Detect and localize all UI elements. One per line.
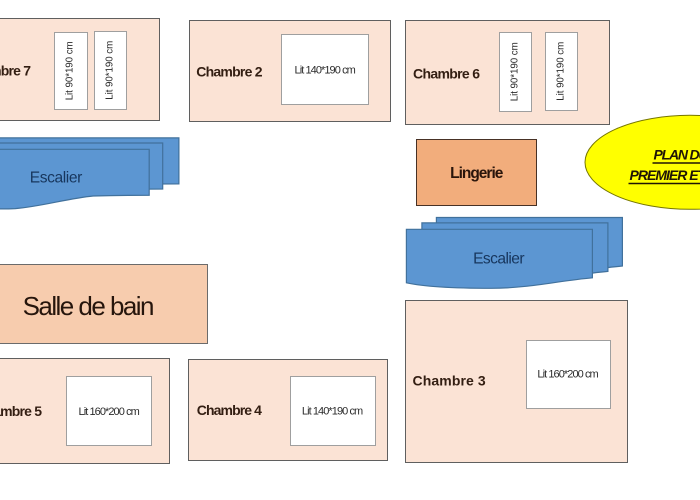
svg-text:Chambre 2: Chambre 2 [196,64,263,80]
svg-text:Lit 90*190 cm: Lit 90*190 cm [105,41,116,100]
svg-text:Chambre 6: Chambre 6 [413,66,480,82]
svg-text:Escalier: Escalier [30,170,83,187]
svg-text:PLAN DU: PLAN DU [654,147,700,163]
svg-text:Lit 90*190 cm: Lit 90*190 cm [65,41,76,100]
svg-text:Chambre 7: Chambre 7 [0,62,31,78]
svg-text:Lingerie: Lingerie [450,165,504,182]
svg-text:Chambre 5: Chambre 5 [0,403,42,419]
svg-text:Escalier: Escalier [473,250,524,267]
svg-text:Lit 90*190 cm: Lit 90*190 cm [556,42,567,101]
svg-text:Salle de bain: Salle de bain [23,291,155,321]
svg-text:Lit 140*190 cm: Lit 140*190 cm [302,406,363,418]
svg-text:Chambre 4: Chambre 4 [197,402,262,418]
svg-text:Lit 160*200 cm: Lit 160*200 cm [79,406,140,418]
svg-text:PREMIER ETAGE: PREMIER ETAGE [630,167,700,183]
svg-text:Lit 90*190 cm: Lit 90*190 cm [510,42,521,101]
svg-text:Lit 140*190 cm: Lit 140*190 cm [295,65,356,77]
svg-text:Chambre 3: Chambre 3 [413,373,486,389]
svg-text:Lit 160*200 cm: Lit 160*200 cm [537,369,598,381]
